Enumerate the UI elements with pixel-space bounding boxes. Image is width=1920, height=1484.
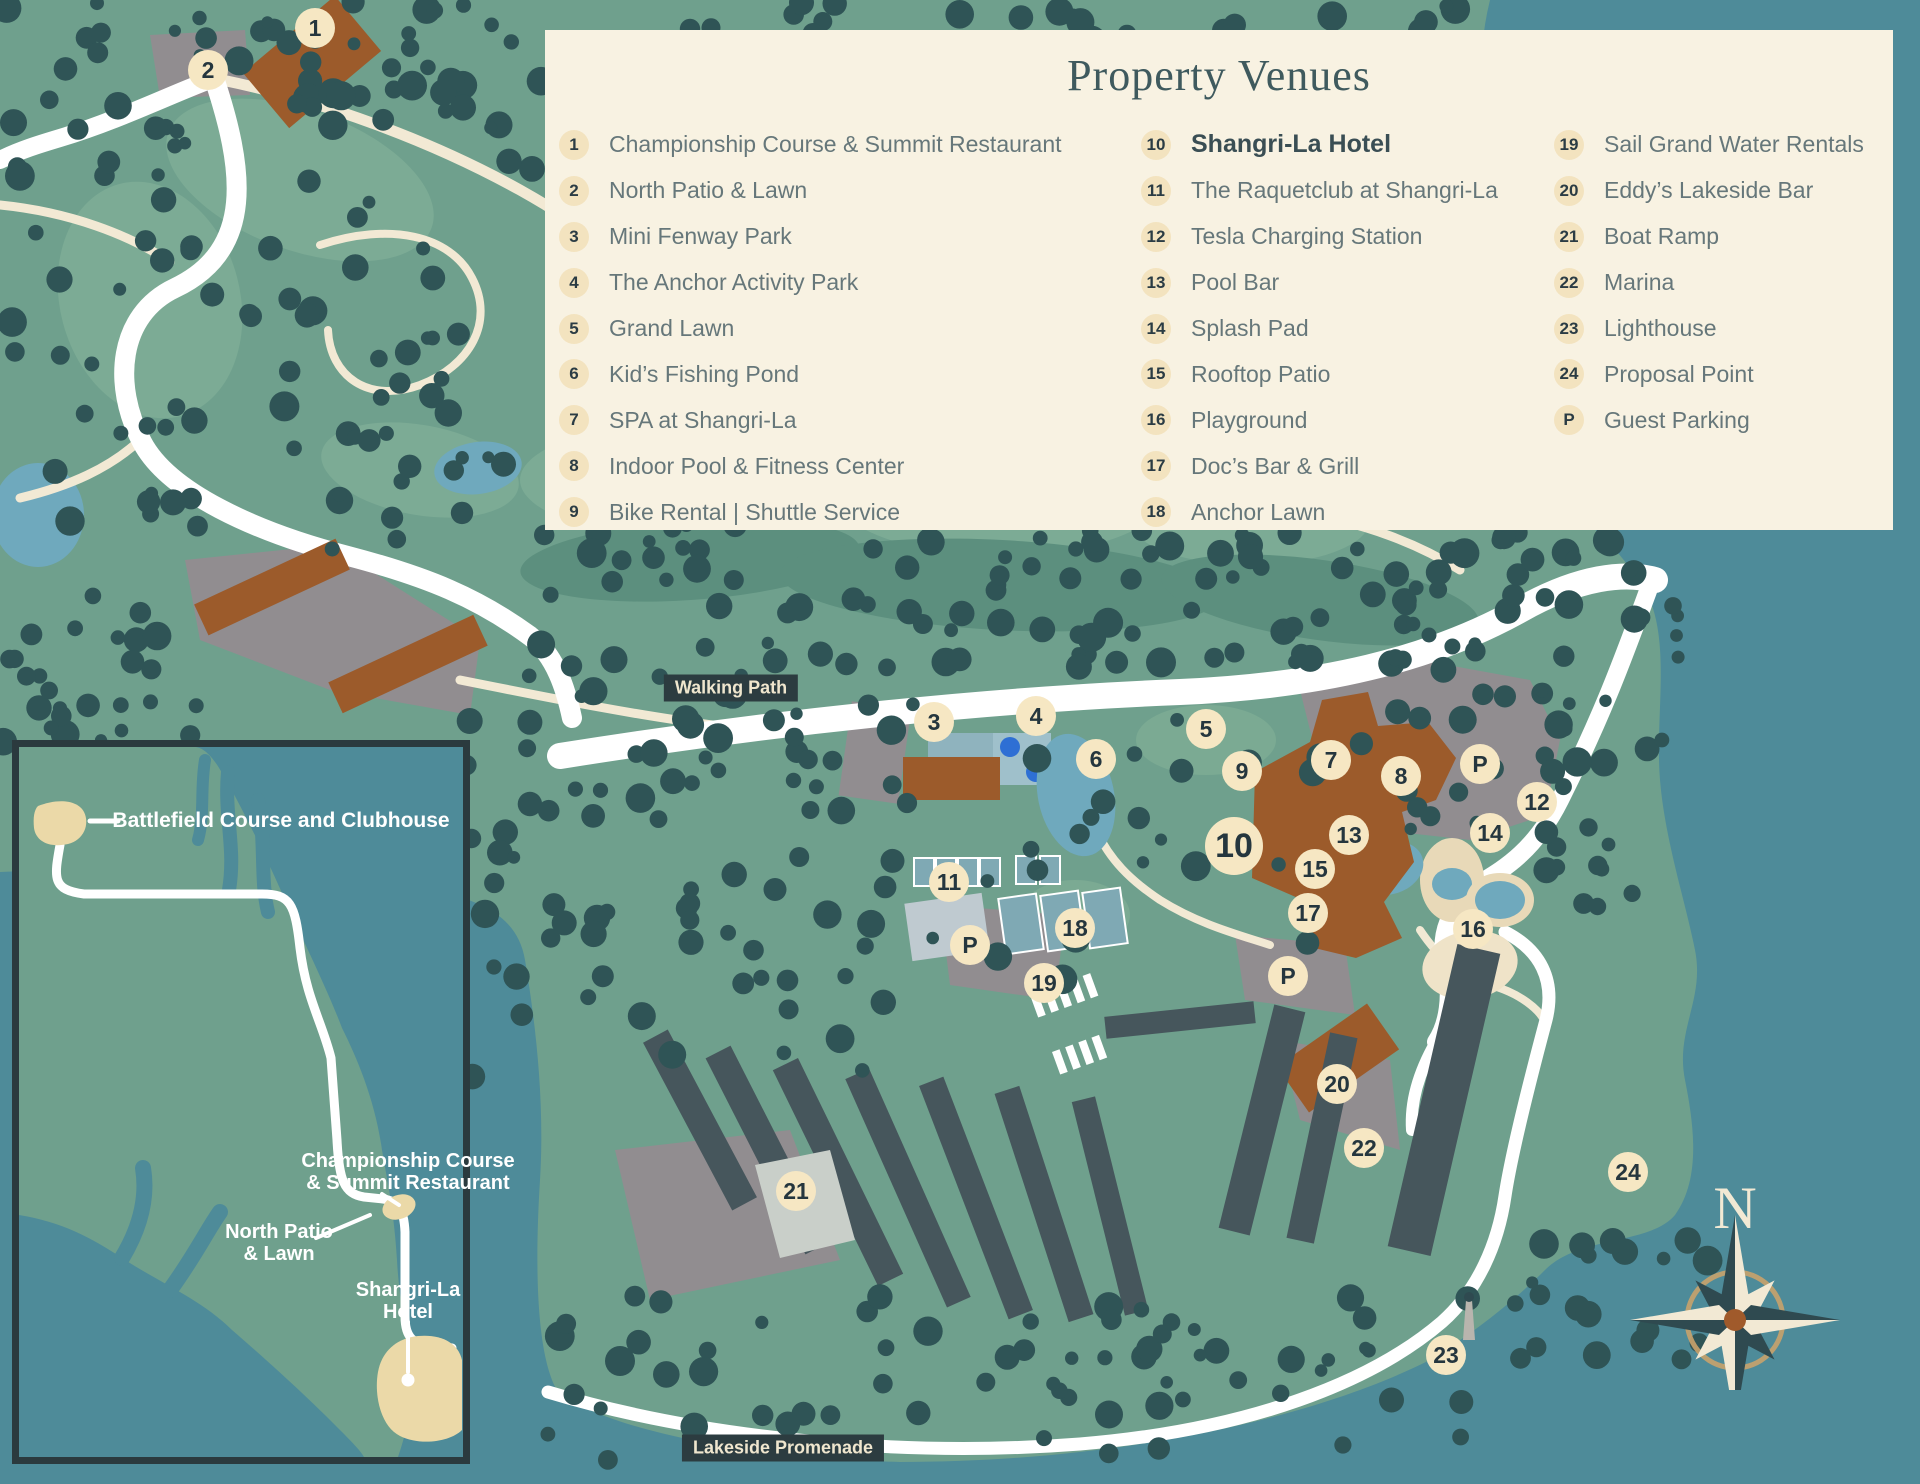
legend-badge-9: 9 xyxy=(559,497,589,527)
lakeside-promenade-label: Lakeside Promenade xyxy=(682,1435,884,1462)
legend-item-label: Boat Ramp xyxy=(1604,223,1719,250)
legend-badge-19: 19 xyxy=(1554,130,1584,160)
inset-label-hotel: Shangri-La Hotel xyxy=(356,1279,460,1323)
legend-item-7: 7SPA at Shangri-La xyxy=(559,397,1062,443)
legend-badge-22: 22 xyxy=(1554,268,1584,298)
legend-item-23: 23Lighthouse xyxy=(1554,306,1864,352)
legend-item-label: Shangri-La Hotel xyxy=(1191,130,1391,159)
walking-path-label: Walking Path xyxy=(664,675,798,702)
legend-item-label: Splash Pad xyxy=(1191,315,1309,342)
legend-item-label: Bike Rental | Shuttle Service xyxy=(609,499,900,526)
inset-label-championship-line2: & Summit Restaurant xyxy=(301,1172,514,1194)
legend-item-2: 2North Patio & Lawn xyxy=(559,168,1062,214)
inset-hotel-dot xyxy=(402,1374,415,1387)
legend-badge-p: P xyxy=(1554,405,1584,435)
map-marker-1[interactable]: 1 xyxy=(295,8,335,48)
legend-item-1: 1Championship Course & Summit Restaurant xyxy=(559,122,1062,168)
map-marker-p-3[interactable]: P xyxy=(1268,956,1308,996)
legend-column-1: 1Championship Course & Summit Restaurant… xyxy=(559,122,1062,535)
map-marker-22[interactable]: 22 xyxy=(1344,1128,1384,1168)
compass-center xyxy=(1724,1309,1746,1331)
map-marker-5[interactable]: 5 xyxy=(1186,709,1226,749)
map-marker-11[interactable]: 11 xyxy=(929,862,969,902)
map-marker-9[interactable]: 9 xyxy=(1222,751,1262,791)
legend-badge-3: 3 xyxy=(559,222,589,252)
legend-item-label: Mini Fenway Park xyxy=(609,223,792,250)
legend-badge-17: 17 xyxy=(1141,451,1171,481)
legend-item-label: Kid’s Fishing Pond xyxy=(609,361,799,388)
inset-label-battlefield: Battlefield Course and Clubhouse xyxy=(112,810,449,832)
legend-item-16: 16Playground xyxy=(1141,397,1498,443)
map-marker-6[interactable]: 6 xyxy=(1076,739,1116,779)
map-marker-16[interactable]: 16 xyxy=(1453,909,1493,949)
legend-item-p: PGuest Parking xyxy=(1554,397,1864,443)
compass-cardinal-points xyxy=(1630,1215,1840,1390)
legend-badge-21: 21 xyxy=(1554,222,1584,252)
legend-badge-13: 13 xyxy=(1141,268,1171,298)
legend-item-label: Tesla Charging Station xyxy=(1191,223,1422,250)
inset-label-north-patio: North Patio & Lawn xyxy=(225,1221,333,1265)
legend-badge-20: 20 xyxy=(1554,176,1584,206)
legend-item-19: 19Sail Grand Water Rentals xyxy=(1554,122,1864,168)
legend-item-17: 17Doc’s Bar & Grill xyxy=(1141,443,1498,489)
map-marker-17[interactable]: 17 xyxy=(1288,893,1328,933)
map-marker-15[interactable]: 15 xyxy=(1295,849,1335,889)
legend-item-6: 6Kid’s Fishing Pond xyxy=(559,351,1062,397)
map-marker-2[interactable]: 2 xyxy=(188,50,228,90)
legend-badge-16: 16 xyxy=(1141,405,1171,435)
legend-item-18: 18Anchor Lawn xyxy=(1141,489,1498,535)
legend-badge-5: 5 xyxy=(559,314,589,344)
legend-item-label: Doc’s Bar & Grill xyxy=(1191,453,1359,480)
map-marker-p-2[interactable]: P xyxy=(950,925,990,965)
inset-label-north-patio-line1: North Patio xyxy=(225,1221,333,1243)
map-marker-18[interactable]: 18 xyxy=(1055,908,1095,948)
legend-item-label: SPA at Shangri-La xyxy=(609,407,797,434)
legend-badge-12: 12 xyxy=(1141,222,1171,252)
legend-item-12: 12Tesla Charging Station xyxy=(1141,214,1498,260)
legend-badge-24: 24 xyxy=(1554,359,1584,389)
map-marker-10[interactable]: 10 xyxy=(1205,817,1263,875)
legend-item-label: Lighthouse xyxy=(1604,315,1717,342)
legend-item-label: Championship Course & Summit Restaurant xyxy=(609,131,1062,158)
legend-item-label: Pool Bar xyxy=(1191,269,1279,296)
map-marker-12[interactable]: 12 xyxy=(1517,782,1557,822)
legend-item-4: 4The Anchor Activity Park xyxy=(559,260,1062,306)
legend-item-9: 9Bike Rental | Shuttle Service xyxy=(559,489,1062,535)
legend-badge-6: 6 xyxy=(559,359,589,389)
legend-item-3: 3Mini Fenway Park xyxy=(559,214,1062,260)
legend-item-label: Rooftop Patio xyxy=(1191,361,1330,388)
resort-property-map: 12345678P9121013141517161118P19P20222124… xyxy=(0,0,1920,1484)
legend-badge-1: 1 xyxy=(559,130,589,160)
legend-item-21: 21Boat Ramp xyxy=(1554,214,1864,260)
legend-item-label: Eddy’s Lakeside Bar xyxy=(1604,177,1813,204)
legend-column-2: 10Shangri-La Hotel11The Raquetclub at Sh… xyxy=(1141,122,1498,535)
lighthouse-icon xyxy=(1463,1292,1475,1340)
legend-item-label: Anchor Lawn xyxy=(1191,499,1325,526)
map-marker-19[interactable]: 19 xyxy=(1024,963,1064,1003)
inset-label-hotel-line2: Hotel xyxy=(356,1301,460,1323)
legend-item-label: Playground xyxy=(1191,407,1307,434)
legend-item-20: 20Eddy’s Lakeside Bar xyxy=(1554,168,1864,214)
legend-badge-15: 15 xyxy=(1141,359,1171,389)
inset-label-championship-line1: Championship Course xyxy=(301,1150,514,1172)
inset-terrain xyxy=(19,747,463,1457)
map-marker-8[interactable]: 8 xyxy=(1381,756,1421,796)
legend-badge-14: 14 xyxy=(1141,314,1171,344)
legend-badge-7: 7 xyxy=(559,405,589,435)
map-marker-7[interactable]: 7 xyxy=(1311,740,1351,780)
legend-title: Property Venues xyxy=(545,30,1893,101)
legend-item-label: The Anchor Activity Park xyxy=(609,269,858,296)
inset-battlefield-site xyxy=(34,801,87,845)
legend-item-24: 24Proposal Point xyxy=(1554,351,1864,397)
legend-column-3: 19Sail Grand Water Rentals20Eddy’s Lakes… xyxy=(1554,122,1864,443)
legend-item-label: Proposal Point xyxy=(1604,361,1754,388)
legend-item-11: 11The Raquetclub at Shangri-La xyxy=(1141,168,1498,214)
map-marker-14[interactable]: 14 xyxy=(1470,813,1510,853)
legend-badge-11: 11 xyxy=(1141,176,1171,206)
legend-item-label: Marina xyxy=(1604,269,1674,296)
legend-item-label: Sail Grand Water Rentals xyxy=(1604,131,1864,158)
legend-badge-10: 10 xyxy=(1141,130,1171,160)
inset-label-hotel-line1: Shangri-La xyxy=(356,1279,460,1301)
raquetclub-building xyxy=(903,757,1000,800)
legend-badge-23: 23 xyxy=(1554,314,1584,344)
legend-item-10: 10Shangri-La Hotel xyxy=(1141,122,1498,168)
map-marker-21[interactable]: 21 xyxy=(776,1171,816,1211)
legend-item-label: Guest Parking xyxy=(1604,407,1750,434)
legend-badge-18: 18 xyxy=(1141,497,1171,527)
inset-label-championship: Championship Course & Summit Restaurant xyxy=(301,1150,514,1194)
map-marker-13[interactable]: 13 xyxy=(1329,815,1369,855)
legend-item-15: 15Rooftop Patio xyxy=(1141,351,1498,397)
map-marker-4[interactable]: 4 xyxy=(1016,696,1056,736)
inset-label-north-patio-line2: & Lawn xyxy=(225,1243,333,1265)
legend-item-5: 5Grand Lawn xyxy=(559,306,1062,352)
inset-overview-map xyxy=(12,740,470,1464)
map-marker-p-1[interactable]: P xyxy=(1460,744,1500,784)
legend-item-13: 13Pool Bar xyxy=(1141,260,1498,306)
map-marker-20[interactable]: 20 xyxy=(1317,1064,1357,1104)
legend-item-label: Indoor Pool & Fitness Center xyxy=(609,453,904,480)
legend-item-8: 8Indoor Pool & Fitness Center xyxy=(559,443,1062,489)
inset-hotel-site xyxy=(377,1336,462,1442)
legend-item-label: Grand Lawn xyxy=(609,315,734,342)
legend-badge-8: 8 xyxy=(559,451,589,481)
legend-panel: Property Venues 1Championship Course & S… xyxy=(545,30,1893,530)
map-marker-23[interactable]: 23 xyxy=(1426,1335,1466,1375)
legend-item-label: The Raquetclub at Shangri-La xyxy=(1191,177,1498,204)
legend-item-label: North Patio & Lawn xyxy=(609,177,807,204)
legend-item-22: 22Marina xyxy=(1554,260,1864,306)
legend-badge-4: 4 xyxy=(559,268,589,298)
legend-badge-2: 2 xyxy=(559,176,589,206)
map-marker-3[interactable]: 3 xyxy=(914,702,954,742)
legend-item-14: 14Splash Pad xyxy=(1141,306,1498,352)
compass-rose: N xyxy=(1630,1150,1840,1390)
